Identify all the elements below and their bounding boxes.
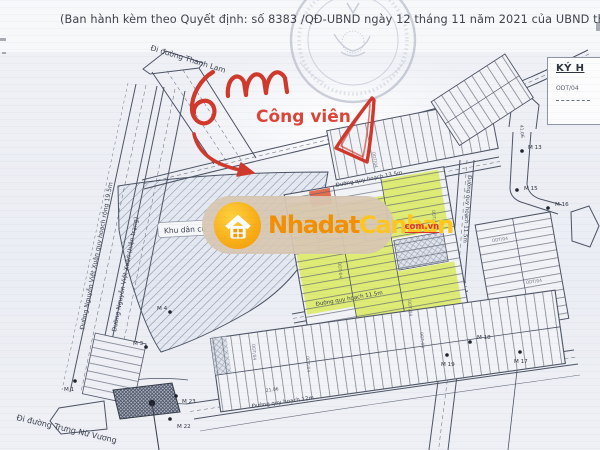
red-arrow xyxy=(194,134,254,176)
scanned-plan-page: Khu dân cư Đi đường Thanh Lam Đường Nguy… xyxy=(0,0,600,450)
red-annotations: Công viên xyxy=(0,0,600,450)
park-annotation-label: Công viên xyxy=(256,107,351,127)
